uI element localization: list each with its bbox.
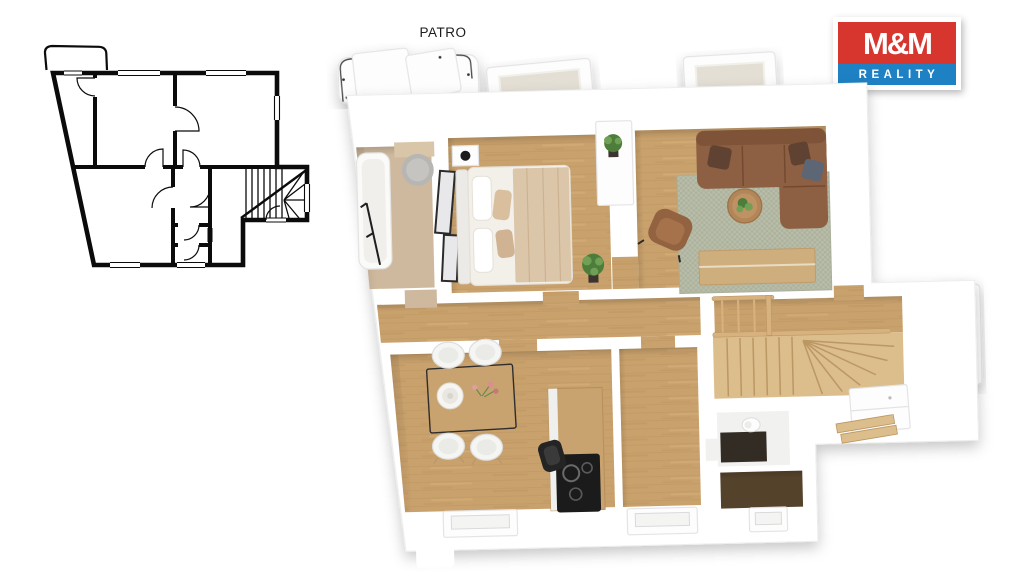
bathroom-door-opening xyxy=(405,289,437,308)
floorplan-2d xyxy=(30,30,320,275)
middle-room xyxy=(619,347,701,507)
dining-table xyxy=(427,364,517,433)
storage-room xyxy=(720,471,803,509)
dresser xyxy=(596,121,634,206)
wc xyxy=(705,411,790,467)
bathroom xyxy=(356,141,438,289)
stair-hall-opening xyxy=(834,285,864,301)
wc-door-opening xyxy=(705,439,720,461)
bedroom xyxy=(432,121,635,294)
living-room xyxy=(635,126,832,295)
wall-stub xyxy=(416,545,455,568)
bedroom-door-opening xyxy=(543,291,579,305)
plan2d-balcony xyxy=(45,46,107,70)
kitchen-dining xyxy=(390,336,615,516)
plan2d-stairs xyxy=(241,169,305,218)
living-door-opening xyxy=(612,257,639,290)
real-estate-floorplan-page: PATRO M&M REALITY xyxy=(0,0,1024,576)
coffee-table xyxy=(727,188,762,223)
floorplan-3d xyxy=(330,36,990,576)
double-bed xyxy=(456,165,573,286)
